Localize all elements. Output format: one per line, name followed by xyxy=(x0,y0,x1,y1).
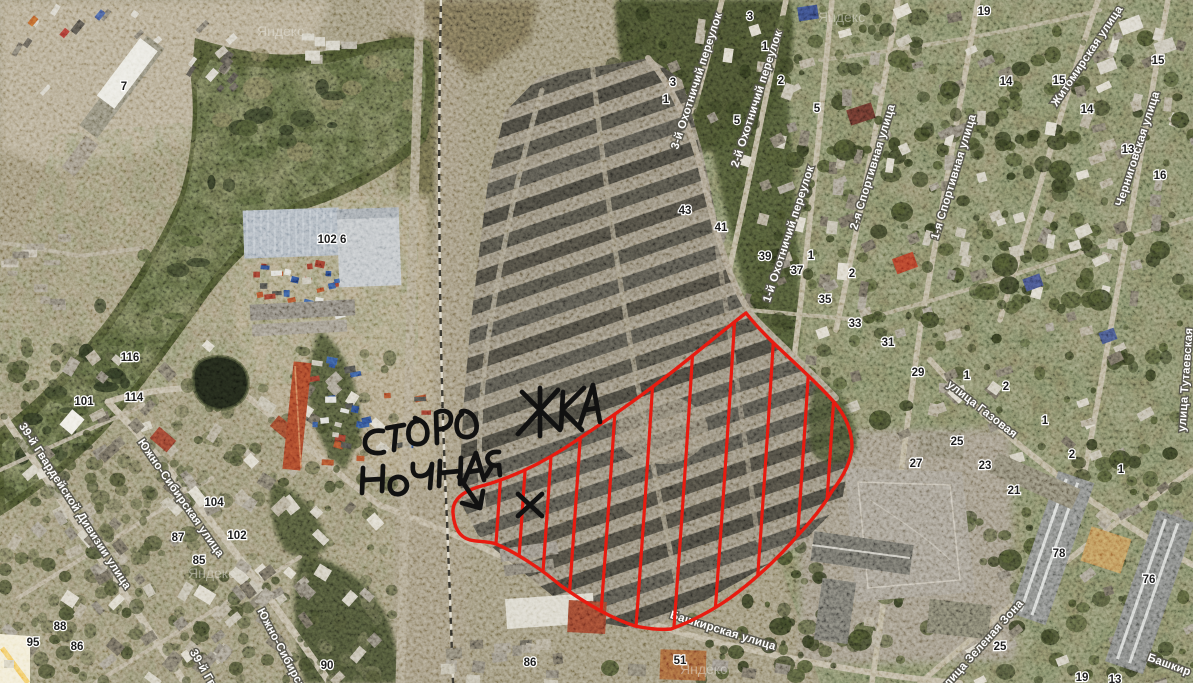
svg-text:35: 35 xyxy=(819,294,832,306)
svg-text:19: 19 xyxy=(1076,672,1089,683)
svg-text:2: 2 xyxy=(849,268,855,280)
svg-text:25: 25 xyxy=(951,436,964,448)
svg-text:86: 86 xyxy=(524,657,537,669)
svg-text:102 6: 102 6 xyxy=(318,234,347,246)
svg-text:Яндекс: Яндекс xyxy=(818,9,865,25)
svg-text:1: 1 xyxy=(1118,464,1125,476)
svg-text:114: 114 xyxy=(125,392,144,404)
svg-text:5: 5 xyxy=(814,103,821,115)
svg-text:13: 13 xyxy=(1122,144,1135,156)
svg-text:90: 90 xyxy=(321,660,334,672)
svg-text:2: 2 xyxy=(1003,381,1009,393)
svg-text:39: 39 xyxy=(759,251,772,263)
svg-text:25: 25 xyxy=(994,641,1007,653)
svg-text:1: 1 xyxy=(762,41,769,53)
svg-text:29: 29 xyxy=(912,367,925,379)
svg-text:Яндекс: Яндекс xyxy=(257,23,304,39)
svg-text:13: 13 xyxy=(1109,674,1122,683)
svg-text:14: 14 xyxy=(1081,104,1094,116)
svg-text:1: 1 xyxy=(964,370,971,382)
svg-text:14: 14 xyxy=(1000,76,1013,88)
svg-text:104: 104 xyxy=(204,497,224,509)
svg-text:16: 16 xyxy=(1154,170,1167,182)
svg-text:102: 102 xyxy=(227,530,246,542)
svg-text:37: 37 xyxy=(791,265,804,277)
svg-text:Яндекс: Яндекс xyxy=(680,661,727,677)
svg-text:2: 2 xyxy=(778,75,784,87)
svg-text:23: 23 xyxy=(979,460,992,472)
svg-text:15: 15 xyxy=(1152,55,1165,67)
svg-text:3: 3 xyxy=(747,11,753,23)
svg-text:27: 27 xyxy=(910,458,923,470)
svg-text:1: 1 xyxy=(1042,415,1049,427)
svg-text:5: 5 xyxy=(734,115,741,127)
svg-text:41: 41 xyxy=(715,222,728,234)
svg-text:2: 2 xyxy=(1069,449,1075,461)
svg-text:76: 76 xyxy=(1143,574,1156,586)
svg-text:116: 116 xyxy=(121,352,140,364)
svg-text:33: 33 xyxy=(849,318,862,330)
svg-text:78: 78 xyxy=(1053,548,1066,560)
svg-text:7: 7 xyxy=(121,81,127,93)
svg-text:Яндекс: Яндекс xyxy=(188,565,235,581)
svg-text:15: 15 xyxy=(1053,75,1066,87)
svg-text:101: 101 xyxy=(74,396,94,408)
svg-text:95: 95 xyxy=(27,637,40,649)
svg-text:3: 3 xyxy=(670,77,676,89)
svg-text:31: 31 xyxy=(882,337,895,349)
svg-text:88: 88 xyxy=(54,621,67,633)
svg-text:43: 43 xyxy=(679,205,692,217)
svg-text:87: 87 xyxy=(172,532,185,544)
svg-text:86: 86 xyxy=(71,641,84,653)
svg-text:1: 1 xyxy=(808,250,815,262)
svg-text:21: 21 xyxy=(1008,485,1021,497)
svg-text:19: 19 xyxy=(978,6,991,18)
svg-text:1: 1 xyxy=(663,94,670,106)
